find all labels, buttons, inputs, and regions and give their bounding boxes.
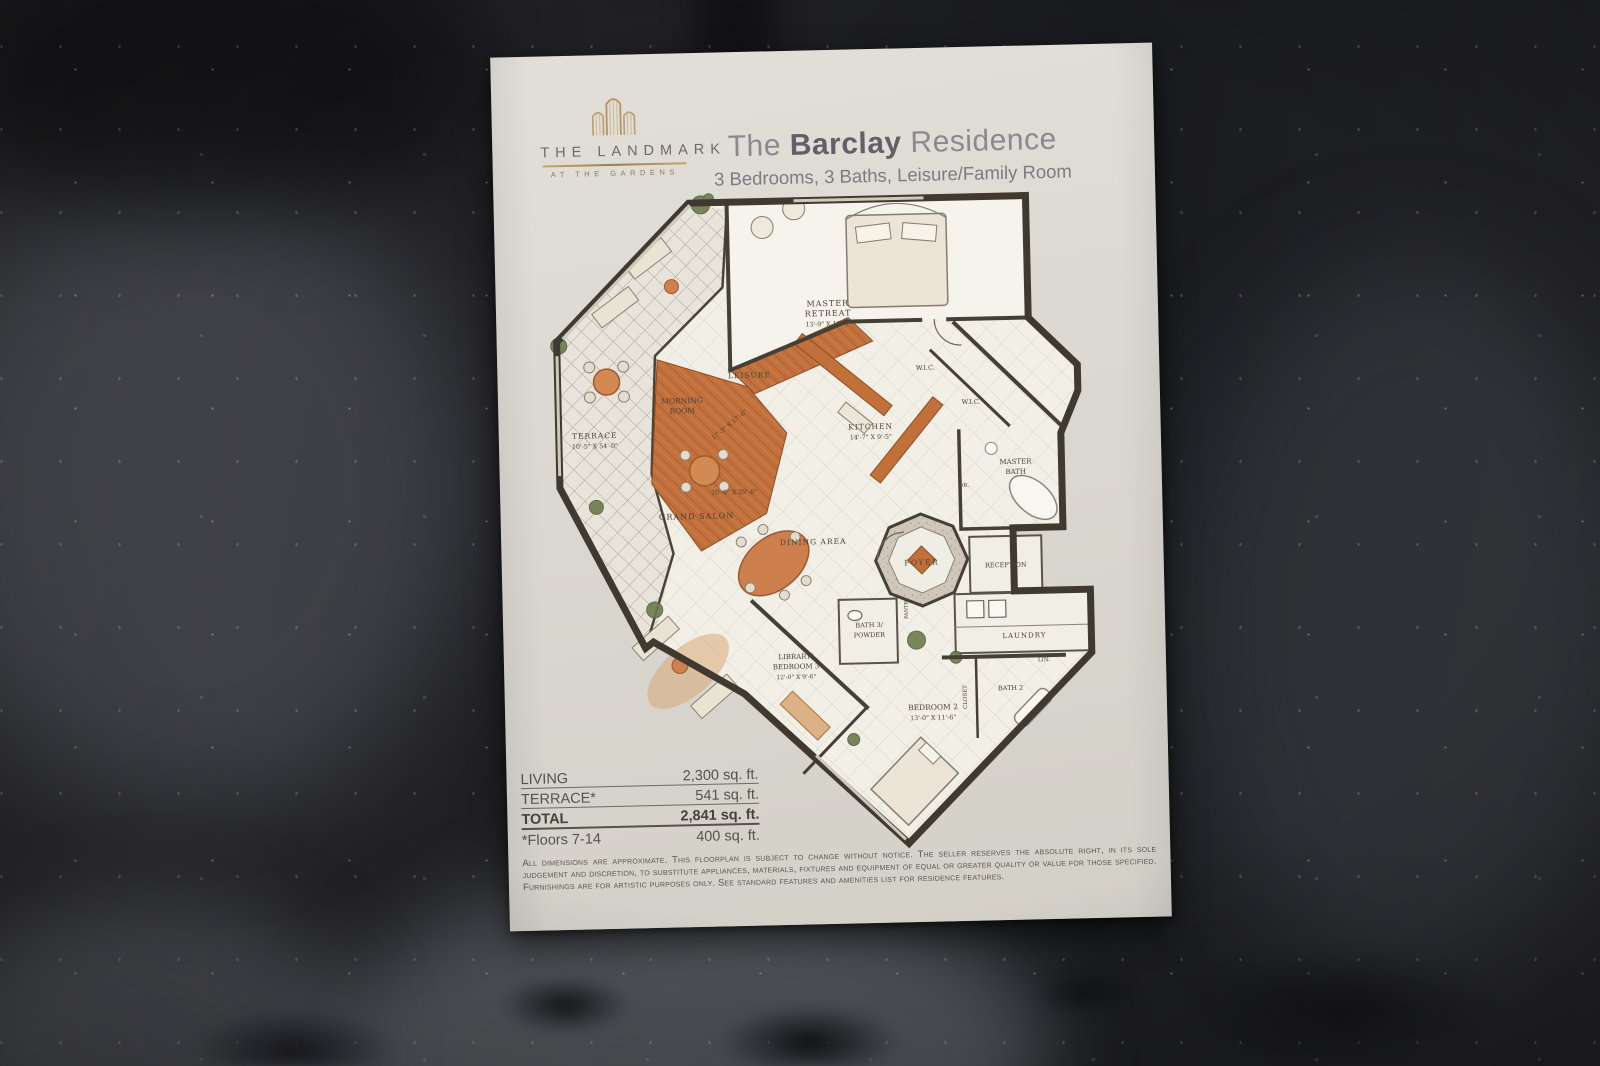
photo-of-floorplan-sheet: THE LANDMARK AT THE GARDENS The Barclay … [0,0,1600,1066]
photo-vignette [0,0,1600,1066]
